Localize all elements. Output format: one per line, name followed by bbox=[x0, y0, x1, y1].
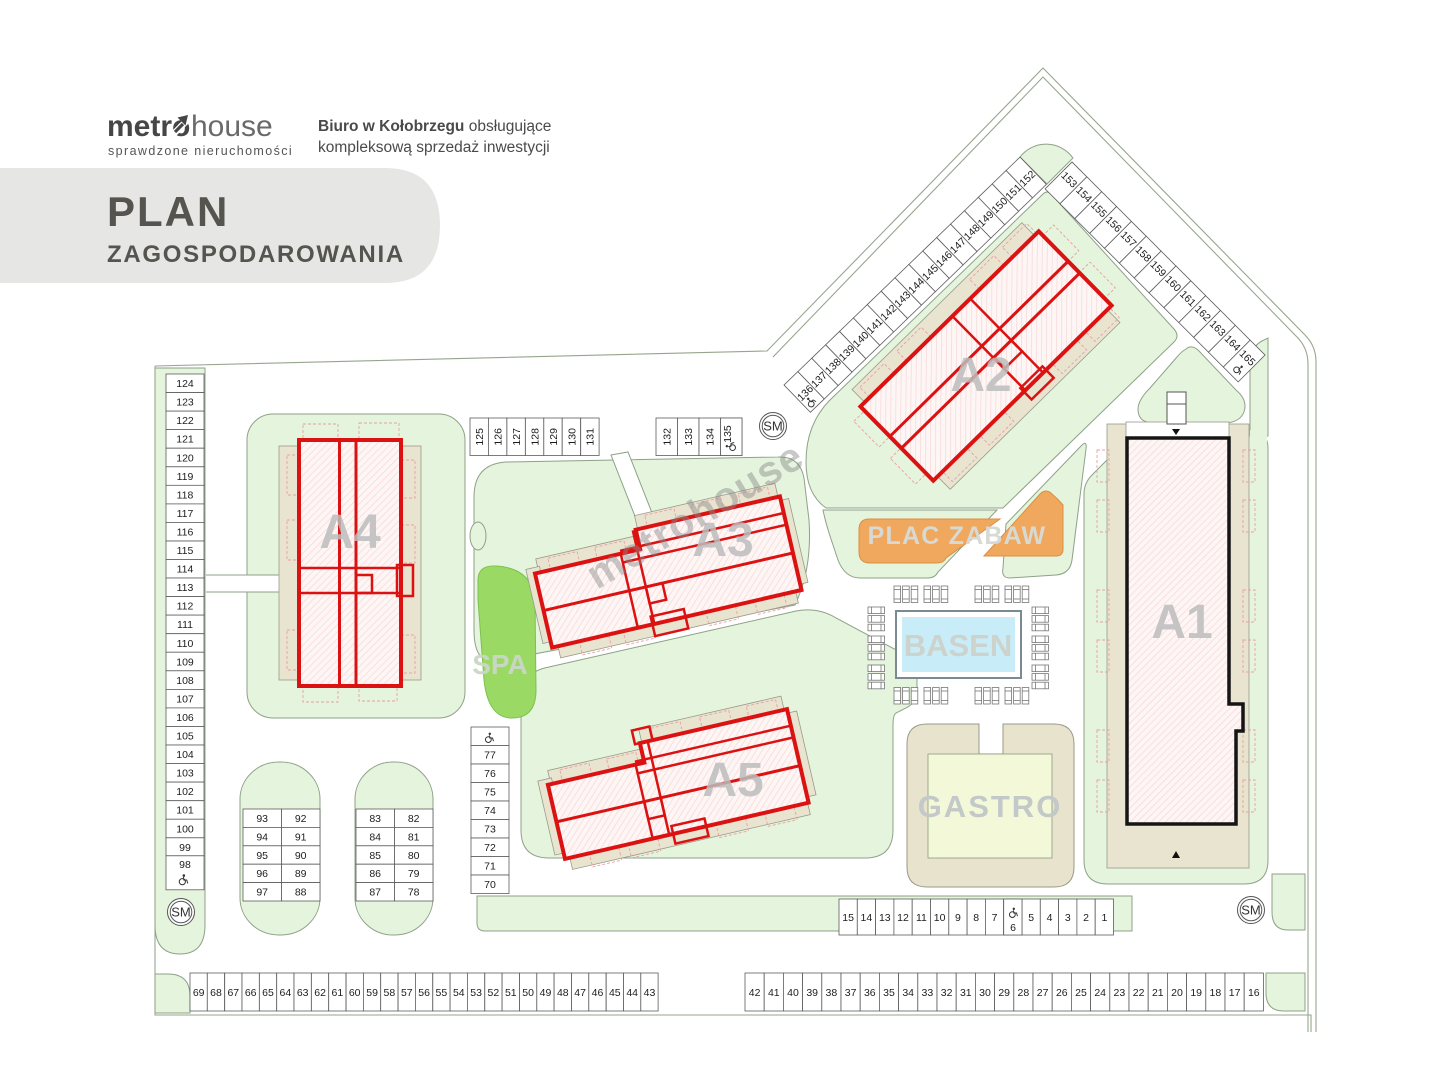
svg-text:44: 44 bbox=[626, 987, 638, 999]
svg-text:27: 27 bbox=[1037, 987, 1049, 999]
svg-text:45: 45 bbox=[609, 987, 621, 999]
svg-text:132: 132 bbox=[662, 428, 674, 446]
svg-text:30: 30 bbox=[979, 987, 991, 999]
svg-text:85: 85 bbox=[369, 850, 381, 862]
svg-text:43: 43 bbox=[644, 987, 656, 999]
svg-text:127: 127 bbox=[511, 428, 523, 446]
svg-text:92: 92 bbox=[295, 813, 307, 825]
svg-text:52: 52 bbox=[488, 987, 500, 999]
svg-text:128: 128 bbox=[529, 428, 541, 446]
svg-text:116: 116 bbox=[177, 527, 194, 539]
svg-text:58: 58 bbox=[384, 987, 396, 999]
svg-text:A1: A1 bbox=[1151, 596, 1212, 649]
svg-text:104: 104 bbox=[176, 749, 194, 761]
svg-text:86: 86 bbox=[369, 868, 381, 880]
svg-text:31: 31 bbox=[960, 987, 972, 999]
svg-text:32: 32 bbox=[941, 987, 953, 999]
svg-text:80: 80 bbox=[408, 850, 420, 862]
svg-text:106: 106 bbox=[176, 712, 194, 724]
svg-text:19: 19 bbox=[1190, 987, 1202, 999]
svg-text:7: 7 bbox=[992, 912, 998, 924]
svg-text:SM: SM bbox=[763, 419, 783, 434]
svg-text:63: 63 bbox=[297, 987, 309, 999]
svg-text:103: 103 bbox=[176, 768, 194, 780]
svg-text:2: 2 bbox=[1083, 912, 1089, 924]
svg-text:SM: SM bbox=[1241, 903, 1261, 918]
svg-text:84: 84 bbox=[369, 831, 381, 843]
svg-text:47: 47 bbox=[574, 987, 586, 999]
svg-text:sprawdzone nieruchomości: sprawdzone nieruchomości bbox=[108, 144, 293, 158]
svg-text:135: 135 bbox=[722, 425, 734, 443]
svg-text:100: 100 bbox=[176, 823, 194, 835]
svg-text:74: 74 bbox=[484, 805, 496, 817]
svg-text:4: 4 bbox=[1047, 912, 1053, 924]
svg-text:76: 76 bbox=[484, 768, 496, 780]
svg-text:101: 101 bbox=[176, 805, 194, 817]
svg-text:A4: A4 bbox=[319, 506, 381, 559]
svg-text:75: 75 bbox=[484, 787, 496, 799]
svg-text:133: 133 bbox=[683, 428, 695, 446]
svg-text:13: 13 bbox=[879, 912, 891, 924]
svg-text:42: 42 bbox=[749, 987, 761, 999]
svg-text:95: 95 bbox=[256, 850, 268, 862]
svg-text:119: 119 bbox=[177, 471, 194, 483]
svg-text:79: 79 bbox=[408, 868, 420, 880]
svg-text:24: 24 bbox=[1094, 987, 1106, 999]
svg-text:3: 3 bbox=[1065, 912, 1071, 924]
svg-text:66: 66 bbox=[245, 987, 257, 999]
svg-text:134: 134 bbox=[705, 428, 717, 446]
svg-text:GASTRO: GASTRO bbox=[918, 789, 1063, 824]
svg-text:PLAN: PLAN bbox=[107, 188, 229, 235]
svg-text:108: 108 bbox=[176, 675, 194, 687]
svg-text:21: 21 bbox=[1152, 987, 1164, 999]
svg-text:102: 102 bbox=[176, 786, 194, 798]
svg-text:26: 26 bbox=[1056, 987, 1068, 999]
svg-text:91: 91 bbox=[295, 831, 307, 843]
svg-text:50: 50 bbox=[522, 987, 534, 999]
svg-text:SM: SM bbox=[171, 905, 191, 920]
svg-text:107: 107 bbox=[176, 693, 194, 705]
svg-text:117: 117 bbox=[177, 508, 194, 520]
svg-text:PLAC ZABAW: PLAC ZABAW bbox=[868, 522, 1047, 550]
svg-text:5: 5 bbox=[1028, 912, 1034, 924]
svg-text:8: 8 bbox=[973, 912, 979, 924]
svg-text:130: 130 bbox=[566, 428, 578, 446]
svg-text:83: 83 bbox=[369, 813, 381, 825]
svg-text:82: 82 bbox=[408, 813, 420, 825]
svg-text:12: 12 bbox=[897, 912, 909, 924]
svg-text:97: 97 bbox=[256, 887, 268, 899]
svg-text:110: 110 bbox=[177, 638, 194, 650]
svg-text:15: 15 bbox=[842, 912, 854, 924]
svg-text:41: 41 bbox=[768, 987, 780, 999]
svg-text:1: 1 bbox=[1101, 912, 1107, 924]
svg-text:69: 69 bbox=[193, 987, 205, 999]
svg-text:77: 77 bbox=[484, 750, 496, 762]
svg-text:33: 33 bbox=[922, 987, 934, 999]
svg-text:54: 54 bbox=[453, 987, 465, 999]
svg-text:72: 72 bbox=[484, 842, 496, 854]
svg-text:67: 67 bbox=[227, 987, 239, 999]
svg-text:89: 89 bbox=[295, 868, 307, 880]
svg-text:115: 115 bbox=[177, 545, 194, 557]
svg-text:65: 65 bbox=[262, 987, 274, 999]
svg-text:131: 131 bbox=[585, 428, 597, 446]
svg-text:111: 111 bbox=[177, 619, 193, 631]
svg-text:93: 93 bbox=[256, 813, 268, 825]
svg-text:Biuro w Kołobrzegu obsługujące: Biuro w Kołobrzegu obsługujące bbox=[318, 118, 551, 135]
svg-text:105: 105 bbox=[176, 731, 194, 743]
svg-text:109: 109 bbox=[176, 656, 194, 668]
svg-text:38: 38 bbox=[826, 987, 838, 999]
svg-text:98: 98 bbox=[179, 859, 191, 871]
svg-text:14: 14 bbox=[861, 912, 873, 924]
svg-text:56: 56 bbox=[418, 987, 430, 999]
svg-text:129: 129 bbox=[548, 428, 560, 446]
svg-text:house: house bbox=[191, 110, 273, 143]
svg-text:125: 125 bbox=[474, 428, 486, 446]
svg-text:kompleksową sprzedaż inwestycj: kompleksową sprzedaż inwestycji bbox=[318, 139, 550, 156]
svg-text:90: 90 bbox=[295, 850, 307, 862]
svg-text:51: 51 bbox=[505, 987, 517, 999]
svg-text:BASEN: BASEN bbox=[904, 628, 1013, 663]
svg-text:71: 71 bbox=[484, 861, 496, 873]
svg-text:46: 46 bbox=[592, 987, 604, 999]
svg-text:73: 73 bbox=[484, 824, 496, 836]
svg-text:113: 113 bbox=[177, 582, 194, 594]
svg-text:16: 16 bbox=[1248, 987, 1260, 999]
svg-text:39: 39 bbox=[806, 987, 818, 999]
svg-text:60: 60 bbox=[349, 987, 361, 999]
svg-text:29: 29 bbox=[998, 987, 1010, 999]
svg-text:123: 123 bbox=[176, 397, 194, 409]
svg-text:20: 20 bbox=[1171, 987, 1183, 999]
svg-text:87: 87 bbox=[369, 887, 381, 899]
svg-text:61: 61 bbox=[332, 987, 344, 999]
svg-text:37: 37 bbox=[845, 987, 857, 999]
svg-text:35: 35 bbox=[883, 987, 895, 999]
svg-text:64: 64 bbox=[280, 987, 292, 999]
svg-text:114: 114 bbox=[177, 564, 194, 576]
svg-text:94: 94 bbox=[256, 831, 268, 843]
svg-text:34: 34 bbox=[902, 987, 914, 999]
svg-text:A5: A5 bbox=[702, 754, 763, 807]
svg-text:70: 70 bbox=[484, 879, 496, 891]
svg-text:49: 49 bbox=[540, 987, 552, 999]
svg-text:53: 53 bbox=[470, 987, 482, 999]
svg-text:11: 11 bbox=[916, 912, 927, 924]
svg-text:25: 25 bbox=[1075, 987, 1087, 999]
svg-text:118: 118 bbox=[177, 489, 194, 501]
svg-text:96: 96 bbox=[256, 868, 268, 880]
svg-text:88: 88 bbox=[295, 887, 307, 899]
svg-text:23: 23 bbox=[1114, 987, 1126, 999]
svg-text:ZAGOSPODAROWANIA: ZAGOSPODAROWANIA bbox=[107, 241, 405, 268]
svg-text:99: 99 bbox=[179, 842, 191, 854]
svg-text:122: 122 bbox=[176, 415, 194, 427]
svg-text:59: 59 bbox=[366, 987, 378, 999]
svg-text:40: 40 bbox=[787, 987, 799, 999]
svg-text:126: 126 bbox=[493, 428, 505, 446]
svg-text:120: 120 bbox=[176, 452, 194, 464]
svg-text:124: 124 bbox=[176, 378, 194, 390]
svg-text:112: 112 bbox=[177, 601, 194, 613]
svg-text:55: 55 bbox=[436, 987, 448, 999]
svg-text:22: 22 bbox=[1133, 987, 1145, 999]
svg-text:9: 9 bbox=[955, 912, 961, 924]
svg-text:78: 78 bbox=[408, 887, 420, 899]
svg-text:28: 28 bbox=[1018, 987, 1030, 999]
svg-text:121: 121 bbox=[176, 434, 194, 446]
svg-text:SPA: SPA bbox=[472, 649, 528, 680]
svg-text:18: 18 bbox=[1210, 987, 1222, 999]
svg-text:48: 48 bbox=[557, 987, 569, 999]
svg-text:17: 17 bbox=[1229, 987, 1241, 999]
svg-text:81: 81 bbox=[408, 831, 420, 843]
svg-text:68: 68 bbox=[210, 987, 222, 999]
svg-text:62: 62 bbox=[314, 987, 326, 999]
svg-text:10: 10 bbox=[934, 912, 946, 924]
svg-text:A2: A2 bbox=[950, 349, 1011, 402]
svg-text:36: 36 bbox=[864, 987, 876, 999]
svg-text:6: 6 bbox=[1010, 922, 1016, 934]
svg-text:57: 57 bbox=[401, 987, 413, 999]
